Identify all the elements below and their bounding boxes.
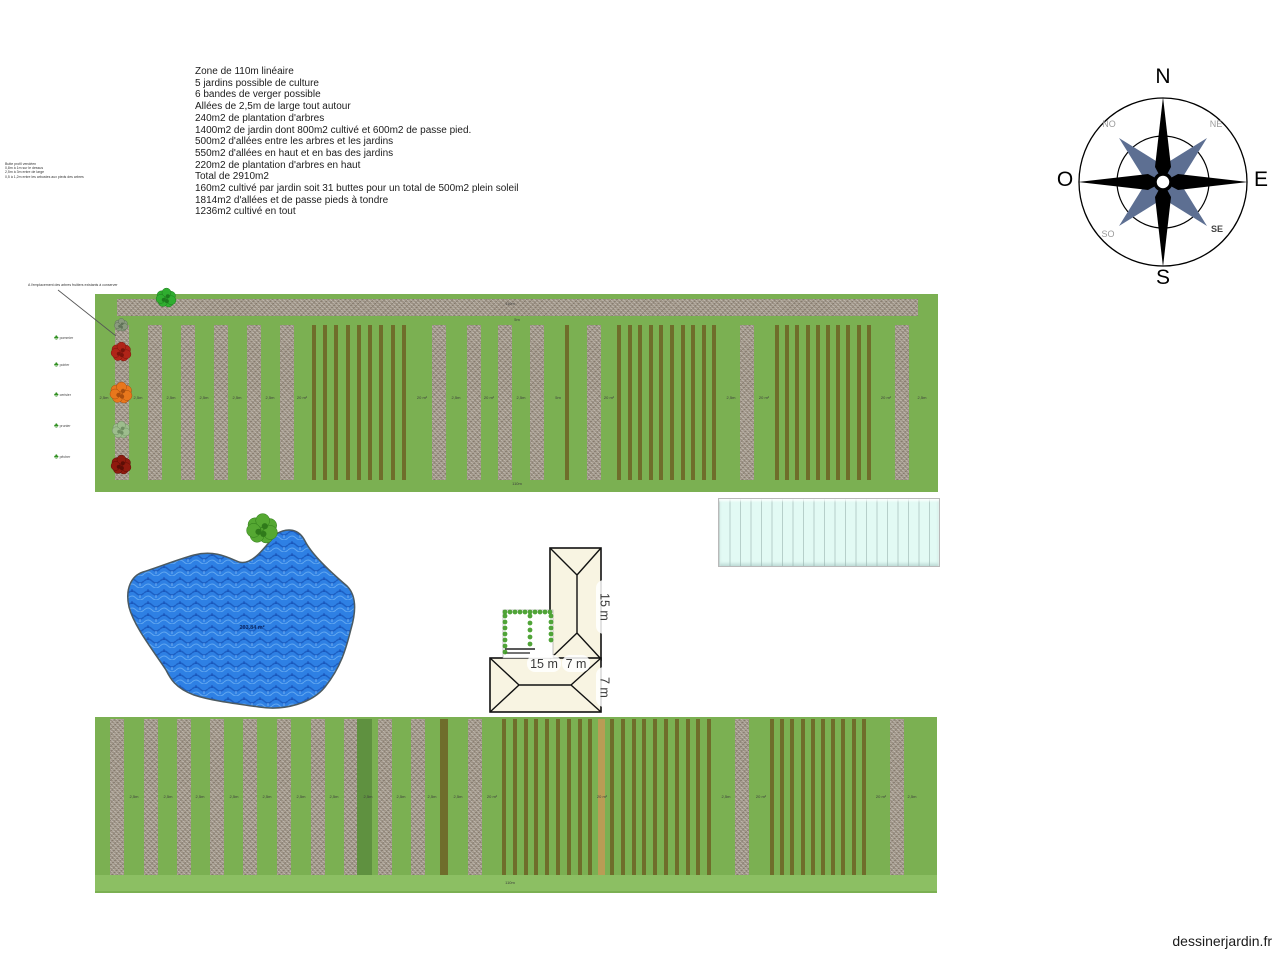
cultivated-bed-bar	[670, 325, 674, 480]
cultivated-bed-bar	[826, 325, 830, 480]
dimension-label: 2,5m	[908, 795, 917, 799]
cultivated-bed-bar	[323, 325, 327, 480]
cultivated-bed-bar	[686, 719, 690, 875]
dimension-label: 20 m²	[604, 396, 614, 400]
compass-label-o: O	[1057, 168, 1073, 192]
dimension-label: 2,5m	[200, 396, 209, 400]
dimension-label: 2,5m	[517, 396, 526, 400]
legend-label: pommier	[60, 336, 74, 340]
cultivated-bed-bar	[712, 325, 716, 480]
dimension-label: 2,5m	[454, 795, 463, 799]
cultivated-bed-bar	[780, 719, 784, 875]
cultivated-bed-bar	[534, 719, 538, 875]
compass-label-so: SO	[1101, 229, 1114, 239]
house[interactable]	[490, 548, 601, 712]
dimension-label: 2,5m	[167, 396, 176, 400]
cultivated-bed-bar	[681, 325, 685, 480]
compass-label-s: S	[1156, 266, 1170, 290]
summary-line: 6 bandes de verger possible	[195, 89, 519, 101]
cultivated-bed-bar	[675, 719, 679, 875]
cultivated-bed-bar	[659, 325, 663, 480]
cultivated-bed-bar	[524, 719, 528, 875]
cultivated-bed-bar	[642, 719, 646, 875]
cultivated-bed-bar	[391, 325, 395, 480]
gravel-path	[411, 719, 425, 875]
cultivated-bed-bar	[775, 325, 779, 480]
dimension-label: 5m	[555, 396, 561, 400]
plan-summary: Zone de 110m linéaire 5 jardins possible…	[195, 66, 519, 218]
pond-tree[interactable]	[247, 514, 278, 543]
dimension-label: 2,5m	[918, 396, 927, 400]
cultivated-bed-bar	[785, 325, 789, 480]
pond[interactable]	[128, 530, 355, 708]
legend-item: ♣pommier	[54, 329, 73, 347]
cultivated-bed-bar	[545, 719, 549, 875]
gravel-path	[177, 719, 191, 875]
plant-icon: ♣	[54, 361, 59, 368]
compass-point-ne	[1163, 138, 1207, 182]
watermark: dessinerjardin.fr	[1172, 933, 1272, 949]
climbing-plants	[503, 610, 554, 655]
greenhouse[interactable]	[718, 498, 940, 567]
cultivated-bed-bar	[578, 719, 582, 875]
summary-line: Total de 2910m2	[195, 171, 519, 183]
dimension-label: 2,5m	[297, 795, 306, 799]
dimension-label: 2,5m	[134, 396, 143, 400]
gravel-path	[432, 325, 446, 480]
gravel-path	[110, 719, 124, 875]
cultivated-bed-bar	[312, 325, 316, 480]
cultivated-bed-bar	[770, 719, 774, 875]
cultivated-bed-bar	[831, 719, 835, 875]
dimension-label: 2,5m	[164, 795, 173, 799]
dimension-label: 2,5m	[266, 396, 275, 400]
summary-line: Allées de 2,5m de large tout autour	[195, 101, 519, 113]
cultivated-bed-bar	[795, 325, 799, 480]
plant-icon: ♣	[54, 391, 59, 398]
summary-line: 1400m2 de jardin dont 800m2 cultivé et 6…	[195, 125, 519, 137]
cultivated-bed-bar	[567, 719, 571, 875]
compass-point-o	[1078, 174, 1163, 190]
dimension-label: 2,5m	[263, 795, 272, 799]
summary-line: Zone de 110m linéaire	[195, 66, 519, 78]
top-garden[interactable]: 2,5m2,5m2,5m2,5m2,5m20 m²20 m²2,5m20 m²2…	[95, 294, 938, 492]
cultivated-bed-bar	[638, 325, 642, 480]
dimension-label: 20 m²	[881, 396, 891, 400]
cultivated-bed-bar	[502, 719, 506, 875]
cultivated-bed-bar	[811, 719, 815, 875]
legend-label: pêcher	[60, 455, 71, 459]
compass-point-n	[1155, 97, 1171, 182]
dimension-label: 5m	[514, 318, 520, 322]
dimension-label: 2,5m	[364, 795, 373, 799]
alley-band	[117, 299, 918, 316]
dimension-label: 20 m²	[297, 396, 307, 400]
summary-line: 550m2 d'allées en haut et en bas des jar…	[195, 148, 519, 160]
butte-profile-note: Butte profil vendéen 0,8m à 1m sur le de…	[5, 162, 84, 179]
dimension-label: 20 m²	[487, 795, 497, 799]
gravel-path	[311, 719, 325, 875]
profile-note-line: 0,5 à 1,2m entre les arbustes aux pieds …	[5, 175, 84, 179]
cultivated-bed-bar	[664, 719, 668, 875]
legend-label: poirier	[60, 363, 70, 367]
gravel-path	[148, 325, 162, 480]
cultivated-bed-bar	[628, 325, 632, 480]
dimension-label: 110m	[512, 482, 522, 486]
gravel-path	[468, 719, 482, 875]
bottom-garden[interactable]: 2,5m2,5m2,5m2,5m2,5m2,5m2,5m2,5m2,5m2,5m…	[95, 717, 937, 893]
compass-label-ne: NE	[1210, 119, 1223, 129]
cultivated-bed-bar	[346, 325, 350, 480]
compass-point-s	[1155, 182, 1171, 267]
cultivated-bed-bar	[846, 325, 850, 480]
legend-item: ♣cerisier	[54, 386, 71, 404]
summary-line: 240m2 de plantation d'arbres	[195, 113, 519, 125]
garden-plan-canvas: Zone de 110m linéaire 5 jardins possible…	[0, 0, 1280, 960]
cultivated-bed-bar	[334, 325, 338, 480]
dimension-label: 20 m²	[876, 795, 886, 799]
compass-point-sw	[1119, 182, 1163, 226]
cultivated-bed-bar	[836, 325, 840, 480]
gravel-path	[210, 719, 224, 875]
alley-band	[95, 875, 937, 891]
cultivated-bed-bar	[790, 719, 794, 875]
cultivated-bed-bar	[357, 325, 361, 480]
dimension-label: 2,5m	[722, 795, 731, 799]
dimension-label: 2,5m	[233, 396, 242, 400]
dimension-label: 2,5m	[727, 396, 736, 400]
cultivated-bed-bar	[806, 325, 810, 480]
dimension-label: 2,5m	[130, 795, 139, 799]
cultivated-bed-bar	[513, 719, 517, 875]
cultivated-bed-bar	[368, 325, 372, 480]
cultivated-bed-bar	[617, 325, 621, 480]
gravel-path	[144, 719, 158, 875]
dimension-label: 2,5m	[452, 396, 461, 400]
cultivated-bed-bar	[632, 719, 636, 875]
summary-line: 160m2 cultivé par jardin soit 31 buttes …	[195, 183, 519, 195]
house-dim-15m-vertical: 15 m	[596, 580, 613, 634]
compass-point-nw	[1119, 138, 1163, 182]
cultivated-bed-bar	[852, 719, 856, 875]
gravel-path	[890, 719, 904, 875]
gravel-path	[247, 325, 261, 480]
gravel-path	[735, 719, 749, 875]
legend-label: prunier	[60, 424, 71, 428]
cultivated-bed-bar	[707, 719, 711, 875]
summary-line: 220m2 de plantation d'arbres en haut	[195, 160, 519, 172]
compass-point-e	[1163, 174, 1248, 190]
cultivated-bed-bar	[801, 719, 805, 875]
pond-area-label: 203.84 m²	[239, 625, 264, 631]
gravel-path	[280, 325, 294, 480]
compass-label-se: SE	[1211, 224, 1223, 234]
house-dim-15m-horizontal: 15 m	[527, 655, 561, 672]
house-dim-7m-vertical: 7 m	[596, 667, 613, 707]
gravel-path	[740, 325, 754, 480]
dimension-label: 2,5m	[100, 396, 109, 400]
dimension-label: 2,5m	[230, 795, 239, 799]
compass-label-no: NO	[1102, 119, 1116, 129]
strip	[565, 325, 569, 480]
cultivated-bed-bar	[821, 719, 825, 875]
gravel-path	[530, 325, 544, 480]
cultivated-bed-bar	[556, 719, 560, 875]
gravel-path	[378, 719, 392, 875]
cultivated-bed-bar	[610, 719, 614, 875]
gravel-path	[498, 325, 512, 480]
compass-label-n: N	[1155, 65, 1170, 89]
dimension-label: 2,5m	[397, 795, 406, 799]
gravel-path	[467, 325, 481, 480]
cultivated-bed-bar	[649, 325, 653, 480]
cultivated-bed-bar	[702, 325, 706, 480]
house-roof-lines	[490, 548, 601, 712]
cultivated-bed-bar	[696, 719, 700, 875]
cultivated-bed-bar	[379, 325, 383, 480]
gravel-path	[344, 719, 358, 875]
legend-item: ♣poirier	[54, 356, 69, 374]
legend-item: ♣prunier	[54, 417, 71, 435]
plant-icon: ♣	[54, 334, 59, 341]
gravel-path	[115, 325, 129, 480]
dimension-label: 20 m²	[417, 396, 427, 400]
summary-line: 1814m2 d'allées et de passe pieds à tond…	[195, 195, 519, 207]
compass-label-e: E	[1254, 168, 1268, 192]
gravel-path	[895, 325, 909, 480]
legend-label: cerisier	[60, 393, 71, 397]
dimension-label: 2,5m	[428, 795, 437, 799]
gravel-path	[277, 719, 291, 875]
cultivated-bed-bar	[402, 325, 406, 480]
gravel-path	[587, 325, 601, 480]
trellis-garden[interactable]	[503, 610, 554, 658]
summary-line: 500m2 d'allées entre les arbres et les j…	[195, 136, 519, 148]
gravel-path	[181, 325, 195, 480]
dimension-label: 20 m²	[484, 396, 494, 400]
cultivated-bed-bar	[588, 719, 592, 875]
tree-annotation: A l'emplacement des arbres fruitiers exi…	[28, 283, 118, 287]
plant-icon: ♣	[54, 453, 59, 460]
house-dim-7m-horizontal: 7 m	[562, 655, 590, 672]
summary-line: 1236m2 cultivé en tout	[195, 206, 519, 218]
compass-point-se	[1163, 182, 1207, 226]
gravel-path	[214, 325, 228, 480]
cultivated-bed-bar	[653, 719, 657, 875]
cultivated-bed-bar	[867, 325, 871, 480]
dimension-label: 20 m²	[759, 396, 769, 400]
cultivated-bed-bar	[691, 325, 695, 480]
plant-icon: ♣	[54, 422, 59, 429]
house-wing-vertical[interactable]	[550, 548, 601, 660]
legend-item: ♣pêcher	[54, 448, 70, 466]
cultivated-bed-bar	[816, 325, 820, 480]
dimension-label: 110m	[505, 881, 515, 885]
cultivated-bed-bar	[841, 719, 845, 875]
strip	[440, 719, 448, 875]
dimension-label: 110m	[505, 302, 515, 306]
dimension-label: 2,5m	[196, 795, 205, 799]
cultivated-bed-bar	[862, 719, 866, 875]
dimension-label: 20 m²	[597, 795, 607, 799]
dimension-label: 20 m²	[756, 795, 766, 799]
dimension-label: 2,5m	[330, 795, 339, 799]
summary-line: 5 jardins possible de culture	[195, 78, 519, 90]
cultivated-bed-bar	[621, 719, 625, 875]
gravel-path	[243, 719, 257, 875]
cultivated-bed-bar	[857, 325, 861, 480]
